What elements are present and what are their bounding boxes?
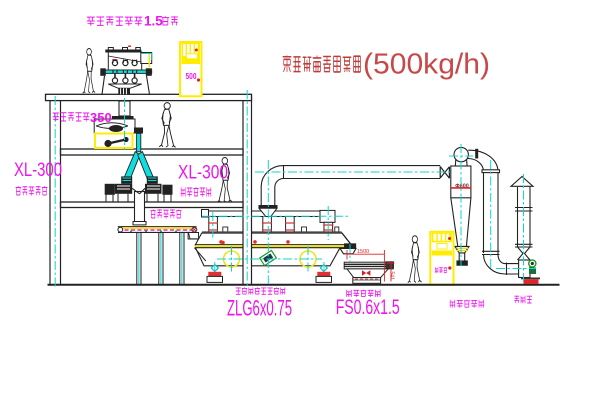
svg-text:ZLG6x0.75: ZLG6x0.75 [227, 296, 292, 321]
svg-text:350: 350 [90, 110, 112, 125]
svg-text:(500kg/h): (500kg/h) [363, 49, 490, 81]
svg-text:FS0.6x1.5: FS0.6x1.5 [336, 295, 400, 319]
svg-text:541: 541 [389, 272, 395, 281]
svg-text:XL-300: XL-300 [178, 162, 228, 183]
svg-text:1.5: 1.5 [144, 14, 163, 29]
svg-text:1500: 1500 [357, 249, 369, 255]
svg-text:500: 500 [186, 72, 197, 81]
svg-text:XL-300: XL-300 [14, 160, 62, 181]
